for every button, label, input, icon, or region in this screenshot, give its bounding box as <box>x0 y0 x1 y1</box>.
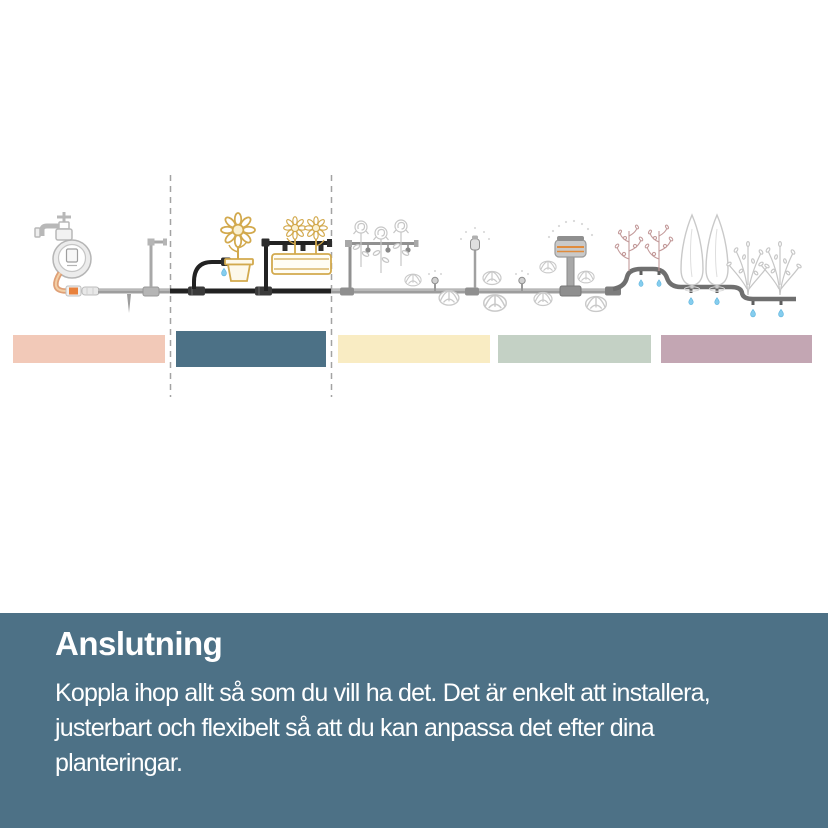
ground-stake-icon <box>127 294 131 313</box>
riser-sprinkler-icon <box>460 227 490 296</box>
rose-plants <box>353 220 410 273</box>
micro-sprinkler-icon <box>428 270 442 291</box>
pipe-connector <box>340 288 354 296</box>
legend-swatch-2-highlighted <box>176 331 326 367</box>
tap-icon <box>35 212 72 240</box>
cypress-trees <box>681 215 728 291</box>
irrigation-diagram <box>0 0 828 612</box>
potted-sunflower <box>221 213 255 281</box>
info-panel: Anslutning Koppla ihop allt så som du vi… <box>0 613 828 828</box>
legend-swatch-5 <box>661 335 812 363</box>
large-sprinkler-icon <box>548 220 593 296</box>
panel-body-text: Koppla ihop allt så som du vill ha det. … <box>55 676 808 781</box>
legend-swatch-4 <box>498 335 651 363</box>
panel-title: Anslutning <box>55 624 808 664</box>
hose-coupling-icon <box>66 286 99 296</box>
legend-swatch-1 <box>13 335 165 363</box>
tomato-plants <box>615 225 674 271</box>
legend-swatch-3 <box>338 335 490 363</box>
pipe-riser <box>143 239 167 297</box>
micro-sprinkler-icon <box>515 270 529 291</box>
product-feature-image: Anslutning Koppla ihop allt så som du vi… <box>0 0 828 828</box>
